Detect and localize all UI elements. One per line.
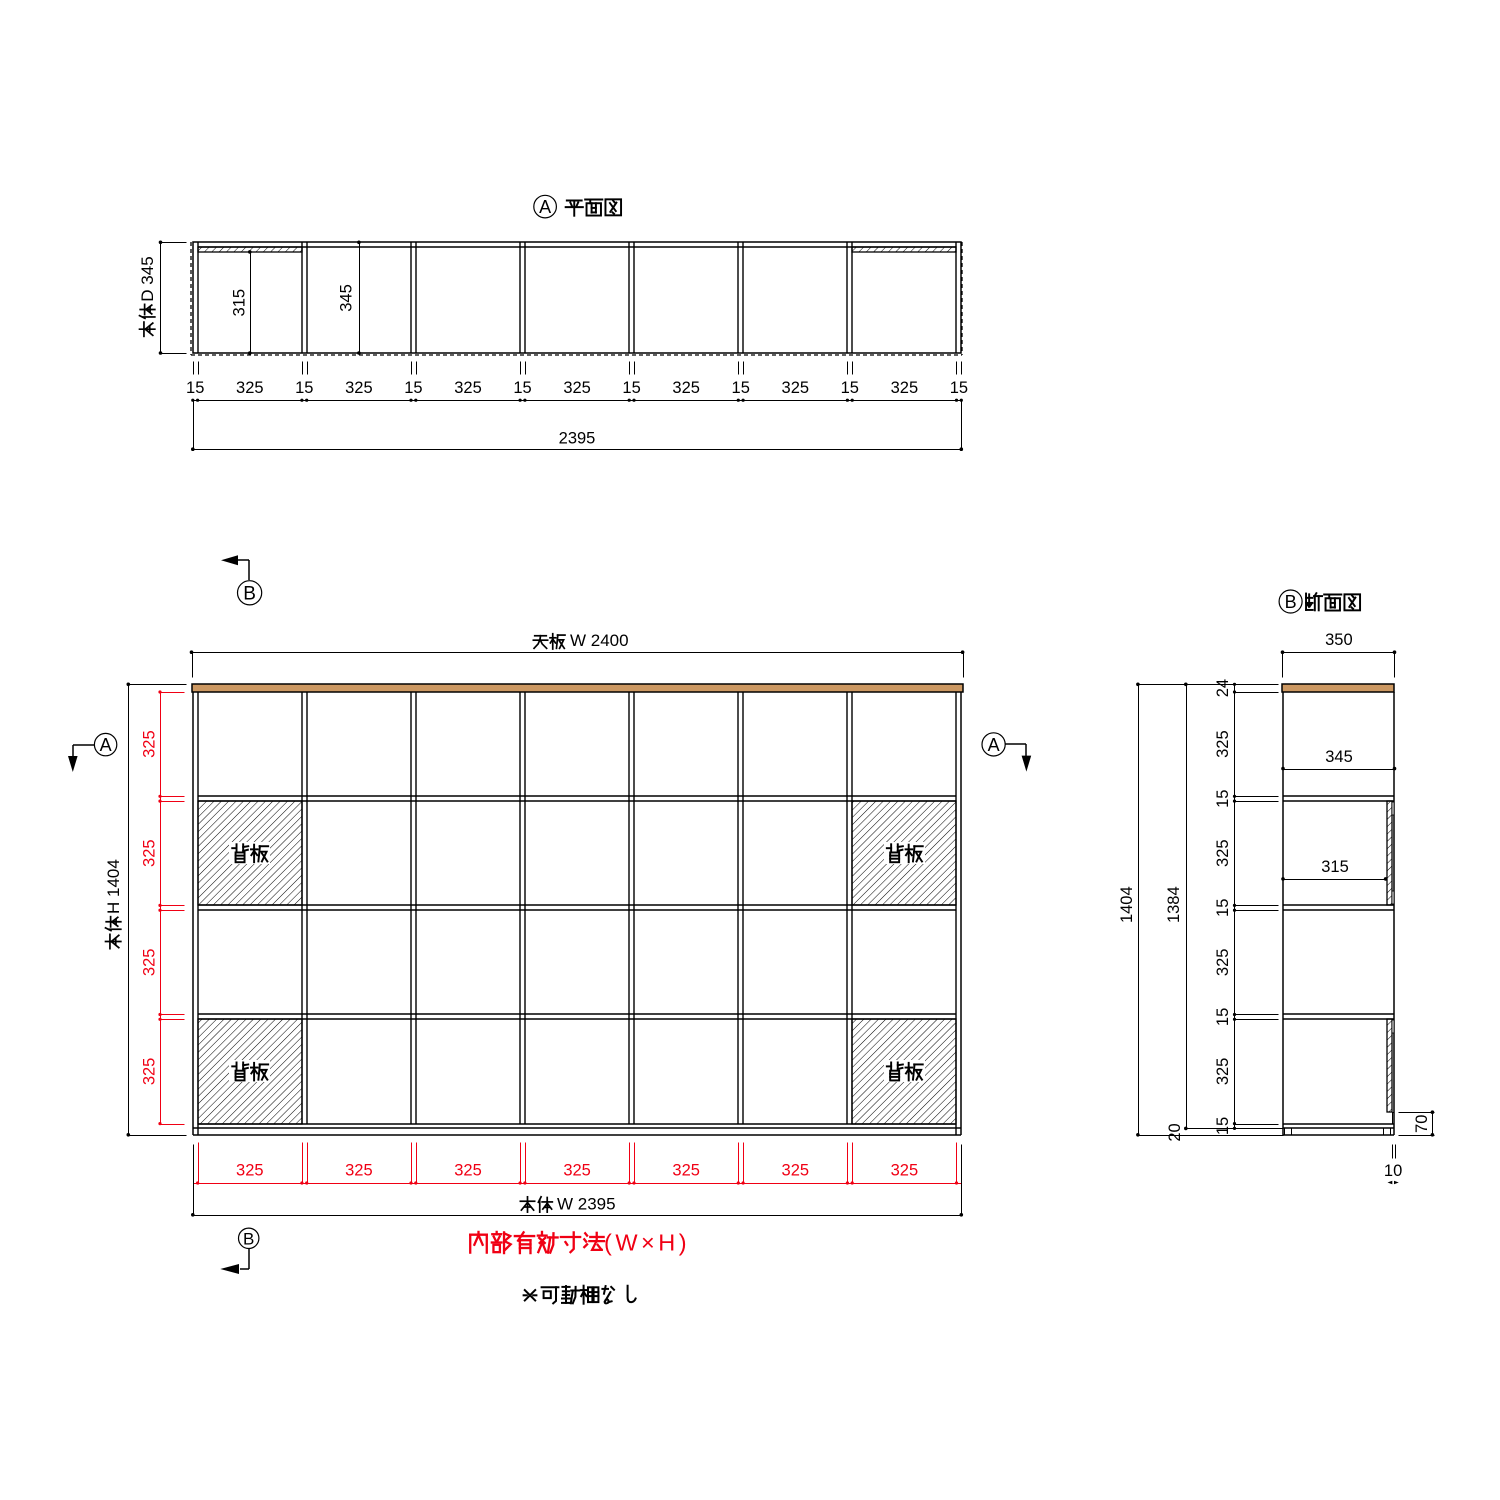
svg-text:15: 15	[295, 379, 313, 397]
svg-text:(W×H): (W×H)	[604, 1230, 690, 1256]
svg-text:325: 325	[140, 1058, 158, 1086]
svg-text:325: 325	[782, 379, 810, 397]
svg-text:15: 15	[404, 379, 422, 397]
svg-text:A: A	[100, 735, 112, 755]
svg-text:D 345: D 345	[138, 256, 157, 301]
svg-text:70: 70	[1413, 1115, 1431, 1133]
svg-text:345: 345	[338, 284, 356, 312]
svg-text:B: B	[243, 1230, 254, 1249]
svg-text:H 1404: H 1404	[104, 859, 123, 914]
svg-text:15: 15	[622, 379, 640, 397]
svg-text:B: B	[243, 584, 256, 605]
svg-text:325: 325	[345, 1162, 373, 1180]
svg-text:325: 325	[563, 379, 591, 397]
svg-text:325: 325	[345, 379, 373, 397]
svg-text:2395: 2395	[559, 430, 596, 448]
svg-text:10: 10	[1384, 1162, 1402, 1180]
svg-text:315: 315	[1321, 858, 1349, 876]
svg-text:345: 345	[1325, 748, 1353, 766]
svg-text:325: 325	[1214, 949, 1232, 977]
svg-text:325: 325	[672, 379, 700, 397]
svg-text:15: 15	[841, 379, 859, 397]
svg-text:325: 325	[140, 839, 158, 867]
svg-text:325: 325	[140, 730, 158, 758]
svg-text:W 2400: W 2400	[570, 631, 629, 650]
svg-text:20: 20	[1166, 1123, 1184, 1141]
svg-text:15: 15	[1214, 1117, 1232, 1135]
svg-text:B: B	[1285, 592, 1297, 612]
svg-text:15: 15	[950, 379, 968, 397]
svg-text:325: 325	[891, 379, 919, 397]
svg-text:325: 325	[1214, 730, 1232, 758]
svg-text:325: 325	[140, 949, 158, 977]
svg-text:15: 15	[1214, 1008, 1232, 1026]
svg-text:325: 325	[782, 1162, 810, 1180]
svg-text:325: 325	[236, 379, 264, 397]
svg-text:325: 325	[563, 1162, 591, 1180]
svg-text:A: A	[988, 735, 1000, 755]
svg-text:325: 325	[1214, 1058, 1232, 1086]
svg-text:325: 325	[454, 379, 482, 397]
svg-text:1384: 1384	[1165, 886, 1183, 923]
svg-text:A: A	[539, 197, 551, 217]
svg-text:15: 15	[1214, 790, 1232, 808]
svg-text:15: 15	[513, 379, 531, 397]
svg-text:325: 325	[672, 1162, 700, 1180]
svg-text:325: 325	[1214, 839, 1232, 867]
svg-text:325: 325	[454, 1162, 482, 1180]
svg-text:1404: 1404	[1118, 886, 1136, 923]
svg-text:315: 315	[230, 289, 248, 317]
svg-text:325: 325	[236, 1162, 264, 1180]
svg-text:15: 15	[732, 379, 750, 397]
svg-text:15: 15	[1214, 899, 1232, 917]
svg-text:24: 24	[1214, 679, 1232, 697]
svg-text:325: 325	[891, 1162, 919, 1180]
svg-text:350: 350	[1325, 631, 1353, 649]
svg-text:W 2395: W 2395	[557, 1194, 616, 1213]
svg-text:15: 15	[186, 379, 204, 397]
